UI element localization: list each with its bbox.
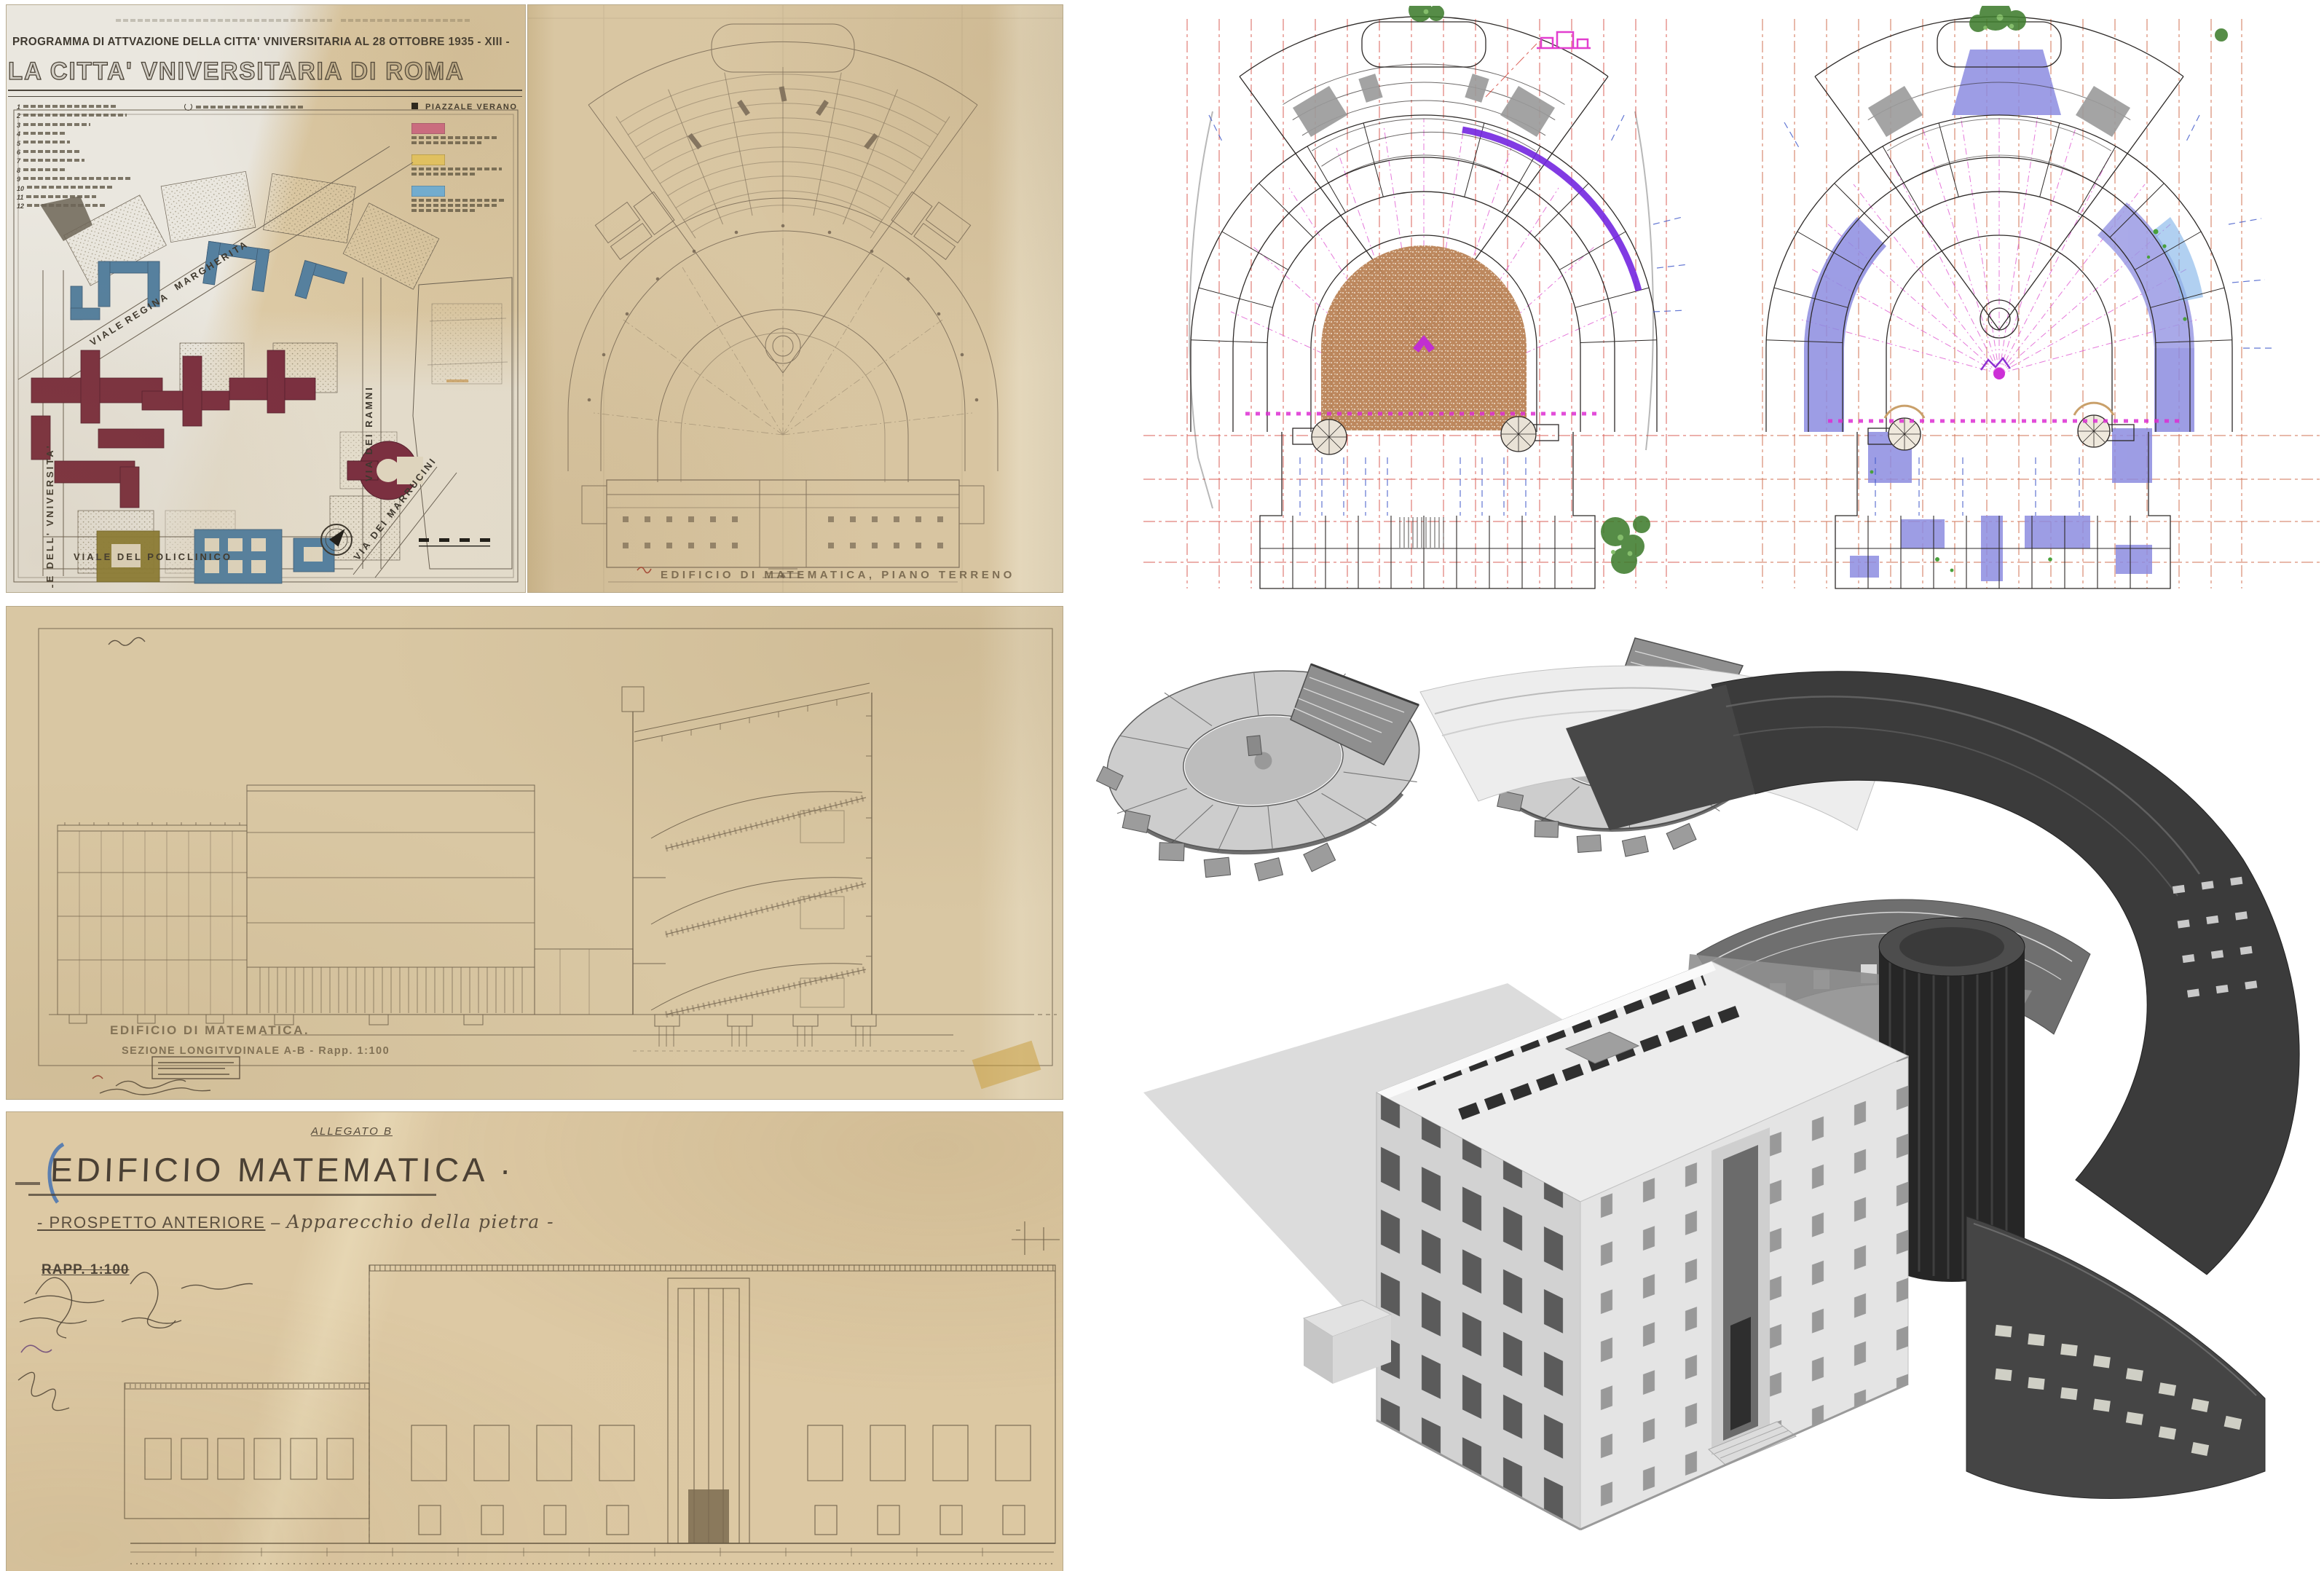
auditoria-tower-section [622,683,872,1015]
section-caption-line1: EDIFICIO DI MATEMATICA. [110,1023,310,1038]
buildings-maroon [31,350,315,508]
ground-plan-caption: EDIFICIO DI MATEMATICA, PIANO TERRENO [661,569,1015,581]
ground-floor-plan-drawing [528,5,1063,592]
street-label: REGINA [123,290,171,326]
elevation-subtitle: - PROSPETTO ANTERIORE – Apparecchio dell… [37,1211,554,1232]
allegato-label: ALLEGATO B [311,1125,393,1138]
architectural-collage: PROGRAMMA DI ATTVAZIONE DELLA CITTA' VNI… [0,0,2324,1571]
link-block-section [535,949,633,1015]
corner-detail-sketch [1012,1221,1060,1255]
title-underline [28,1194,436,1196]
elevation-drawing-panel: ALLEGATO B EDIFICIO MATEMATICA · - PROSP… [6,1111,1063,1571]
site-outline [1189,111,1213,508]
scale-bar [419,538,490,546]
elevation-title: EDIFICIO MATEMATICA · [50,1150,515,1189]
library-block-section [247,785,535,1015]
campus-map-drawing: VIALE REGINA MARGHERITA VIALE DELL' VNIV… [11,103,521,588]
periwinkle-fills [1804,50,2203,581]
scale-label: RAPP. 1:100 [42,1262,130,1278]
wall-poche [1293,74,1555,137]
section-caption-line2: SEZIONE LONGITVDINALE A-B - Rapp. 1:100 [122,1045,390,1057]
entrance-door [1730,1317,1751,1430]
left-wing-elevation [125,1383,369,1519]
site-plan-title: LA CITTA' VNIVERSITARIA DI ROMA [8,58,508,86]
stamp-and-signatures [92,1057,240,1095]
site-plan-subtitle: PROGRAMMA DI ATTVAZIONE DELLA CITTA' VNI… [12,36,513,49]
sheet-number-scribble [109,637,145,645]
tree-canopies [1969,6,2228,42]
street-label: VIALE DEL POLICLINICO [74,551,232,562]
section-drawing-panel: EDIFICIO DI MATEMATICA. SEZIONE LONGITVD… [6,606,1063,1100]
street-label: VIA DEI RAMNI [363,385,374,481]
left-wing-section [58,822,247,1015]
spiral-stairs [1885,403,2114,450]
main-facade [369,1265,1055,1543]
faded-stamp-line [116,14,509,27]
street-label: VIALE DELL' VNIVERSITA' [44,444,55,588]
ground-floor-plan-panel: EDIFICIO DI MATEMATICA, PIANO TERRENO [527,4,1063,593]
magenta-detail-symbol [1486,32,1591,97]
title-rule [8,90,522,97]
compass-rose-icon [321,524,352,555]
cad-plan-ground-floor [1143,6,1708,599]
cad-plan-upper-floor [1712,6,2320,599]
bim-model-axonometric [1129,641,2324,1571]
site-plan-1935-panel: PROGRAMMA DI ATTVAZIONE DELLA CITTA' VNI… [6,4,526,593]
signature-scribbles [18,1272,253,1411]
map-note-mark [446,379,468,382]
red-annotation-mark [637,567,651,573]
street-label: VIALE [88,318,127,348]
magenta-center-mark [1993,368,2005,379]
